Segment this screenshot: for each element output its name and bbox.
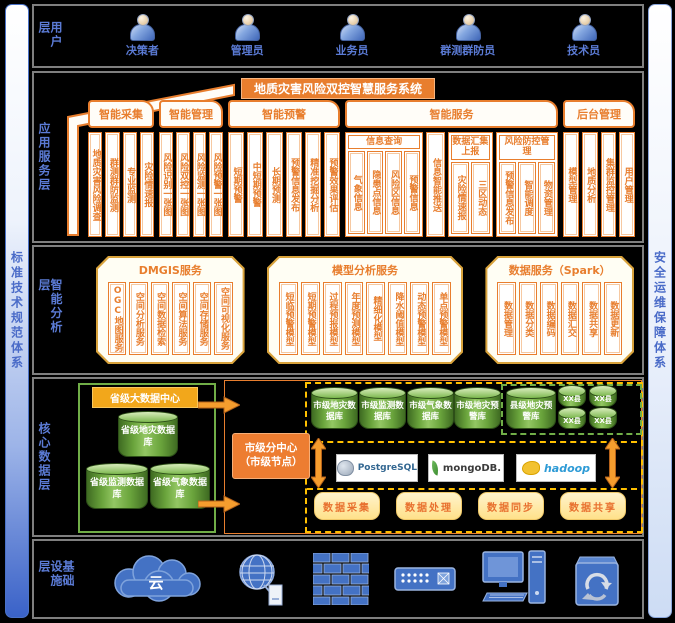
analysis-boxes-row: DMGIS服务OGC地图服务空间分析服务空间数据检索空间算法服务空间存储服务空间… bbox=[96, 256, 634, 364]
data-layer-content: 省级大数据中心 省级地灾数据库省级监测数据库省级气象数据库 市级分中心 （市级节… bbox=[34, 379, 642, 535]
section-columns: 信息查询气象信息隐患点信息风险区信息预警信息信息智能推送数据汇集上报灾险情速报三… bbox=[345, 132, 558, 237]
hadoop-logo: hadoop bbox=[516, 454, 596, 482]
hadoop-logo-text: hadoop bbox=[544, 462, 590, 475]
app-section: 后台管理模型管理地质分析集群监控管理用户管理 bbox=[563, 100, 635, 237]
feature-column: 专业监测 bbox=[123, 132, 137, 237]
database-label: 省级监测数据库 bbox=[87, 475, 147, 501]
section-tab: 后台管理 bbox=[563, 100, 635, 128]
feature-column: 风险监测一张图 bbox=[193, 132, 207, 237]
arrow-right-top-icon bbox=[198, 396, 240, 414]
database-label: 市级监测数据库 bbox=[360, 398, 405, 422]
feature-column: 灾险情速报 bbox=[451, 162, 470, 234]
data-process-button: 数据共享 bbox=[560, 492, 626, 520]
core-data-layer: 核心数据层 省级大数据中心 省级地灾数据库省级监测数据库省级气象数据库 bbox=[32, 377, 644, 537]
analysis-column: 空间可视化服务 bbox=[214, 282, 232, 355]
analysis-column: 空间存储服务 bbox=[193, 282, 211, 355]
feature-group: 数据汇集上报灾险情速报三区动态 bbox=[448, 132, 493, 237]
feature-column: 群测群防监测 bbox=[105, 132, 119, 237]
analysis-column: 降水阈值模型 bbox=[388, 282, 407, 355]
analysis-box-title: 模型分析服务 bbox=[279, 262, 452, 278]
feature-column: 风险区信息 bbox=[385, 151, 402, 234]
user-role-label: 技术员 bbox=[567, 42, 600, 58]
feature-column: 预警信息 bbox=[404, 151, 421, 234]
section-tab: 智能管理 bbox=[159, 100, 223, 128]
feature-group-header: 风险防控管理 bbox=[499, 135, 555, 160]
database-cylinder-icon: XX县 bbox=[558, 389, 586, 407]
analysis-column: 短临预警模型 bbox=[279, 282, 298, 355]
data-process-button: 数据同步 bbox=[478, 492, 544, 520]
database-label: XX县 bbox=[594, 414, 612, 426]
database-cylinder-icon: XX县 bbox=[558, 411, 586, 429]
data-process-button: 数据处理 bbox=[396, 492, 462, 520]
feature-group-header: 数据汇集上报 bbox=[451, 135, 490, 160]
left-standards-label: 标准技术规范体系 bbox=[9, 251, 26, 371]
infra-layer-label: 基础设施层 bbox=[38, 560, 74, 598]
database-cylinder-icon: 省级监测数据库 bbox=[86, 467, 148, 509]
analysis-column: 空间算法服务 bbox=[172, 282, 190, 355]
section-tab: 智能预警 bbox=[228, 100, 340, 128]
postgresql-logo-text: PostgreSQL bbox=[358, 463, 417, 473]
feature-column: 三区动态 bbox=[471, 162, 490, 234]
database-cylinder-icon: 市级监测数据库 bbox=[359, 391, 406, 429]
user-role-label: 决策者 bbox=[126, 42, 159, 58]
feature-column: 地质灾害风险调查 bbox=[88, 132, 102, 237]
postgresql-logo: PostgreSQL bbox=[336, 454, 418, 482]
analysis-column: 单点预警模型 bbox=[432, 282, 451, 355]
app-section: 智能预警短期预警中短期预警长期预测预警信息发布精准挖掘分析预警效果评估 bbox=[228, 100, 340, 237]
arrow-vertical-right-icon bbox=[605, 438, 620, 488]
dashed-divider-bottom bbox=[307, 488, 637, 490]
analysis-box-columns: 数据管理数据分类数据编码数据汇交数据共享数据更新 bbox=[497, 282, 622, 355]
architecture-diagram: 标准技术规范体系 安全运维保障体系 用户层 决策者管理员业务员群测群防员技术员 … bbox=[0, 0, 675, 623]
dashed-divider-top bbox=[307, 441, 637, 443]
app-service-layer: 应用服务层 地质灾害风险双控智慧服务系统 智能采集地质灾害风险调查群测群防监测专… bbox=[32, 71, 644, 243]
feature-column: 模型管理 bbox=[563, 132, 579, 237]
feature-column: 精准挖掘分析 bbox=[305, 132, 321, 237]
app-sections-row: 智能采集地质灾害风险调查群测群防监测专业监测灾险情速报智能管理风险识别一张图风险… bbox=[88, 100, 636, 237]
analysis-column: 过程预报模型 bbox=[323, 282, 342, 355]
analysis-service-box: 数据服务（Spark）数据管理数据分类数据编码数据汇交数据共享数据更新 bbox=[485, 256, 634, 364]
globe-network-icon bbox=[236, 552, 288, 606]
analysis-column: 短期预警模型 bbox=[301, 282, 320, 355]
feature-group-columns: 气象信息隐患点信息风险区信息预警信息 bbox=[348, 151, 420, 234]
feature-column: 信息智能推送 bbox=[426, 132, 444, 237]
cloud-label: 云 bbox=[103, 572, 211, 593]
feature-column: 预警信息发布 bbox=[286, 132, 302, 237]
section-tab: 智能服务 bbox=[345, 100, 558, 128]
database-label: 省级气象数据库 bbox=[151, 475, 209, 501]
feature-column: 用户管理 bbox=[619, 132, 635, 237]
user-role-label: 群测群防员 bbox=[440, 42, 495, 58]
analysis-column: 数据管理 bbox=[497, 282, 515, 355]
feature-column: 预警信息发布 bbox=[499, 162, 516, 234]
database-label: XX县 bbox=[563, 392, 581, 404]
database-cylinder-icon: 市级气象数据库 bbox=[407, 391, 454, 429]
database-label: 省级地灾数据库 bbox=[119, 423, 177, 449]
users-row: 决策者管理员业务员群测群防员技术员 bbox=[90, 6, 636, 66]
user-layer-label: 用户层 bbox=[38, 21, 62, 51]
analysis-column: 数据汇交 bbox=[561, 282, 579, 355]
person-icon bbox=[339, 14, 365, 41]
network-switch-icon bbox=[394, 564, 456, 594]
infra-icons-row: 云 bbox=[90, 544, 634, 614]
feature-group-columns: 预警信息发布智能调度物资管理 bbox=[499, 162, 555, 234]
database-label: 市级地灾预警库 bbox=[455, 398, 500, 422]
user-item: 决策者 bbox=[126, 14, 159, 58]
data-process-button: 数据采集 bbox=[314, 492, 380, 520]
user-role-label: 管理员 bbox=[231, 42, 264, 58]
city-subcenter-box: 市级分中心 （市级节点） bbox=[232, 433, 310, 479]
feature-column: 风险预警一张图 bbox=[209, 132, 223, 237]
city-subcenter-line2: （市级节点） bbox=[240, 456, 303, 470]
cloud-icon: 云 bbox=[103, 552, 211, 606]
database-label: 市级地灾数据库 bbox=[312, 398, 357, 422]
mongodb-logo-text: mongoDB. bbox=[443, 463, 501, 474]
app-section: 智能服务信息查询气象信息隐患点信息风险区信息预警信息信息智能推送数据汇集上报灾险… bbox=[345, 100, 558, 237]
user-role-label: 业务员 bbox=[335, 42, 368, 58]
feature-column: 风险识别一张图 bbox=[159, 132, 173, 237]
database-label: 市级气象数据库 bbox=[408, 398, 453, 422]
feature-group-columns: 灾险情速报三区动态 bbox=[451, 162, 490, 234]
analysis-box-columns: 短临预警模型短期预警模型过程预报模型年度预测模型精细化模型降水阈值模型动态预警模… bbox=[279, 282, 452, 355]
feature-column: 地质分析 bbox=[582, 132, 598, 237]
database-label: XX县 bbox=[563, 414, 581, 426]
user-item: 业务员 bbox=[335, 14, 368, 58]
analysis-column: OGC地图服务 bbox=[108, 282, 126, 355]
analysis-box-title: 数据服务（Spark） bbox=[497, 262, 622, 278]
feature-column: 气象信息 bbox=[348, 151, 365, 234]
database-cylinder-icon: XX县 bbox=[589, 389, 617, 407]
infra-layer: 基础设施层 云 bbox=[32, 539, 644, 619]
analysis-layer-label: 智能分析层 bbox=[38, 279, 62, 342]
app-section: 智能管理风险识别一张图风险双控一张图风险监测一张图风险预警一张图 bbox=[159, 100, 223, 237]
person-icon bbox=[571, 14, 597, 41]
feature-group: 信息查询气象信息隐患点信息风险区信息预警信息 bbox=[345, 132, 423, 237]
section-columns: 地质灾害风险调查群测群防监测专业监测灾险情速报 bbox=[88, 132, 154, 237]
mongodb-logo: mongoDB. bbox=[428, 454, 504, 482]
section-columns: 风险识别一张图风险双控一张图风险监测一张图风险预警一张图 bbox=[159, 132, 223, 237]
database-label: 县级地灾预警库 bbox=[507, 398, 555, 422]
feature-column: 灾险情速报 bbox=[140, 132, 154, 237]
server-recycle-icon bbox=[572, 549, 622, 609]
feature-column: 中短期预警 bbox=[247, 132, 263, 237]
feature-column: 隐患点信息 bbox=[367, 151, 384, 234]
user-item: 群测群防员 bbox=[440, 14, 495, 58]
analysis-column: 数据更新 bbox=[604, 282, 622, 355]
analysis-column: 数据分类 bbox=[519, 282, 537, 355]
hadoop-logo-glyph bbox=[522, 461, 540, 475]
left-standards-bar: 标准技术规范体系 bbox=[5, 4, 29, 618]
section-columns: 短期预警中短期预警长期预测预警信息发布精准挖掘分析预警效果评估 bbox=[228, 132, 340, 237]
mongodb-logo-glyph bbox=[430, 460, 441, 475]
app-section: 智能采集地质灾害风险调查群测群防监测专业监测灾险情速报 bbox=[88, 100, 154, 237]
postgresql-logo-glyph bbox=[337, 460, 354, 476]
analysis-service-box: DMGIS服务OGC地图服务空间分析服务空间数据检索空间算法服务空间存储服务空间… bbox=[96, 256, 245, 364]
right-security-bar: 安全运维保障体系 bbox=[648, 4, 672, 618]
data-process-buttons: 数据采集数据处理数据同步数据共享 bbox=[314, 492, 626, 520]
user-layer: 用户层 决策者管理员业务员群测群防员技术员 bbox=[32, 4, 644, 68]
city-subcenter-line1: 市级分中心 bbox=[245, 442, 298, 456]
feature-column: 智能调度 bbox=[518, 162, 535, 234]
firewall-icon bbox=[313, 553, 369, 605]
database-cylinder-icon: 市级地灾预警库 bbox=[454, 391, 501, 429]
analysis-box-title: DMGIS服务 bbox=[108, 262, 233, 278]
person-icon bbox=[455, 14, 481, 41]
database-cylinder-icon: 县级地灾预警库 bbox=[506, 391, 556, 429]
database-cylinder-icon: 省级地灾数据库 bbox=[118, 415, 178, 457]
analysis-column: 年度预测模型 bbox=[345, 282, 364, 355]
user-item: 技术员 bbox=[567, 14, 600, 58]
feature-column: 短期预警 bbox=[228, 132, 244, 237]
database-label: XX县 bbox=[594, 392, 612, 404]
analysis-column: 空间分析服务 bbox=[129, 282, 147, 355]
right-security-label: 安全运维保障体系 bbox=[652, 251, 669, 371]
system-title: 地质灾害风险双控智慧服务系统 bbox=[241, 78, 435, 99]
analysis-column: 数据共享 bbox=[582, 282, 600, 355]
analysis-column: 数据编码 bbox=[540, 282, 558, 355]
feature-column: 预警效果评估 bbox=[324, 132, 340, 237]
province-center-title: 省级大数据中心 bbox=[92, 387, 198, 408]
analysis-column: 空间数据检索 bbox=[151, 282, 169, 355]
person-icon bbox=[129, 14, 155, 41]
analysis-column: 精细化模型 bbox=[366, 282, 385, 355]
analysis-column: 动态预警模型 bbox=[410, 282, 429, 355]
arrow-vertical-left-icon bbox=[311, 438, 326, 488]
section-columns: 模型管理地质分析集群监控管理用户管理 bbox=[563, 132, 635, 237]
database-cylinder-icon: 市级地灾数据库 bbox=[311, 391, 358, 429]
feature-column: 风险双控一张图 bbox=[176, 132, 190, 237]
feature-group-header: 信息查询 bbox=[348, 135, 420, 149]
feature-column: 物资管理 bbox=[538, 162, 555, 234]
person-icon bbox=[234, 14, 260, 41]
analysis-layer: 智能分析层 DMGIS服务OGC地图服务空间分析服务空间数据检索空间算法服务空间… bbox=[32, 245, 644, 375]
feature-group: 风险防控管理预警信息发布智能调度物资管理 bbox=[496, 132, 558, 237]
feature-column: 长期预测 bbox=[266, 132, 282, 237]
analysis-service-box: 模型分析服务短临预警模型短期预警模型过程预报模型年度预测模型精细化模型降水阈值模… bbox=[267, 256, 464, 364]
analysis-box-columns: OGC地图服务空间分析服务空间数据检索空间算法服务空间存储服务空间可视化服务 bbox=[108, 282, 233, 355]
database-cylinder-icon: XX县 bbox=[589, 411, 617, 429]
feature-column: 集群监控管理 bbox=[601, 132, 617, 237]
workstation-icon bbox=[481, 549, 547, 609]
section-tab: 智能采集 bbox=[88, 100, 154, 128]
user-item: 管理员 bbox=[231, 14, 264, 58]
